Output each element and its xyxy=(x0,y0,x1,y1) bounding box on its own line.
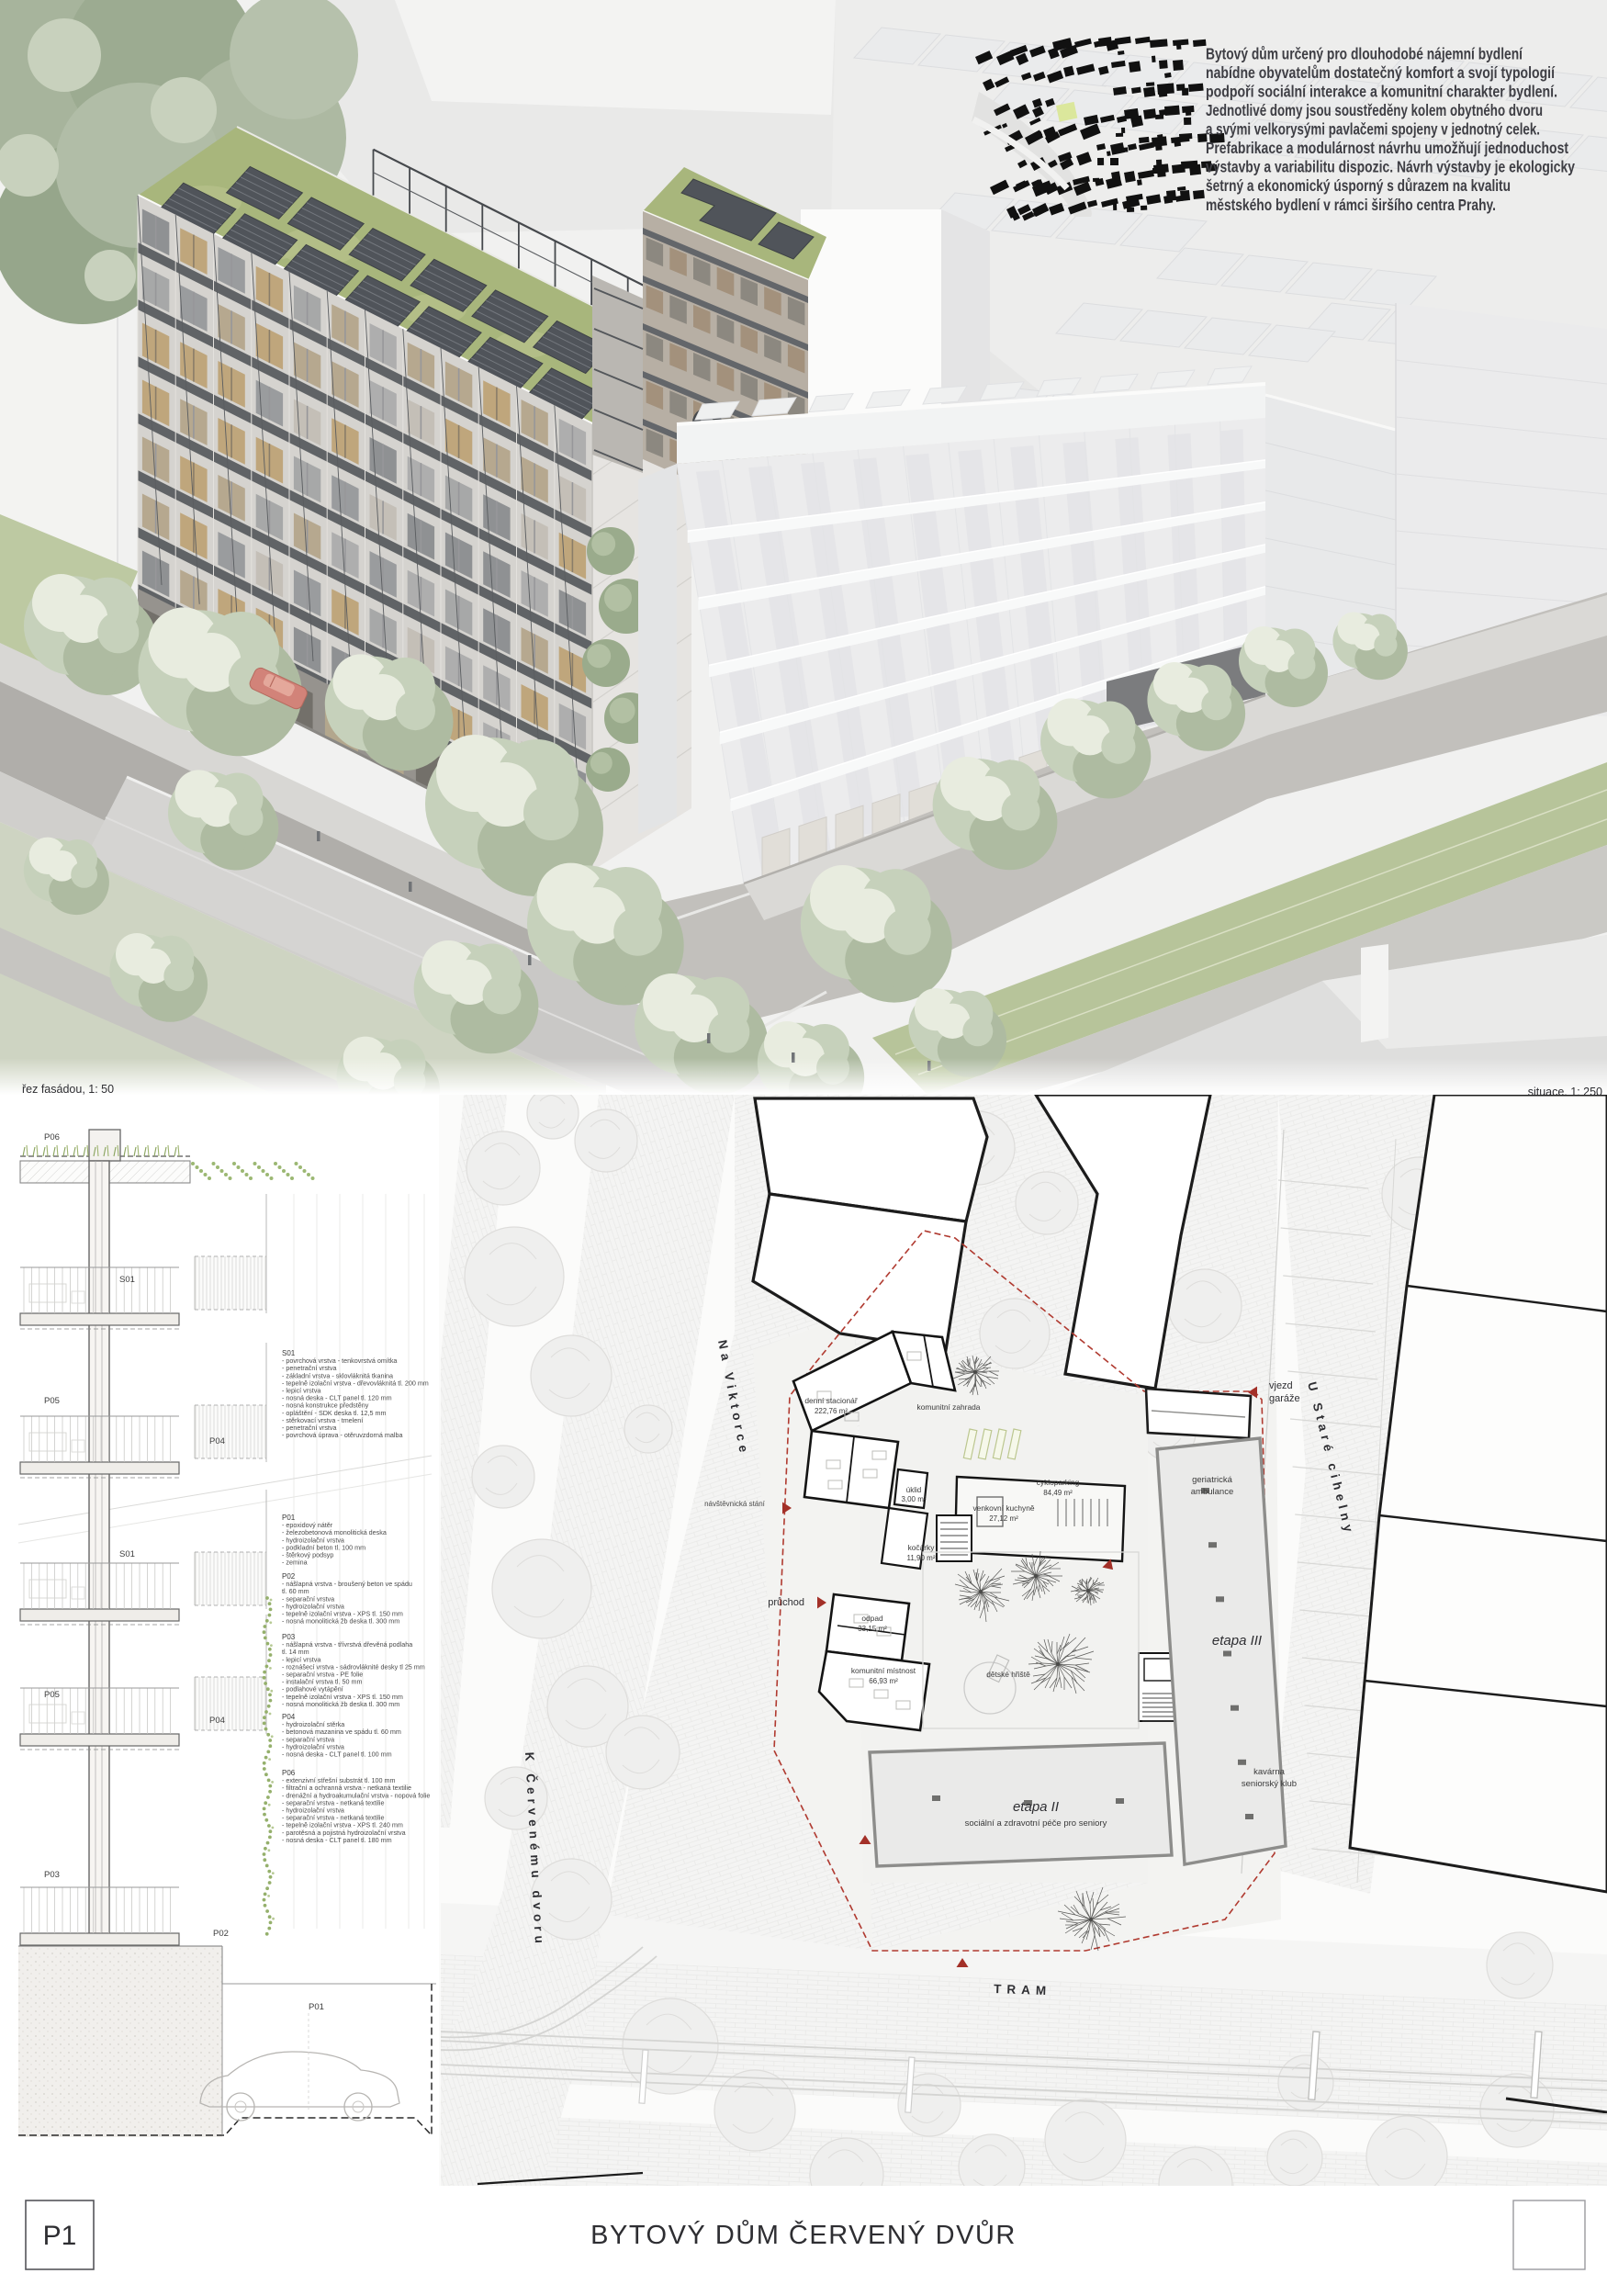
svg-text:podpoří sociální interakce a k: podpoří sociální interakce a komunitní c… xyxy=(1206,83,1557,101)
svg-text:66,93 m²: 66,93 m² xyxy=(869,1677,898,1685)
svg-text:- povrchová úprava - otěruvzdo: - povrchová úprava - otěruvzdorná malba xyxy=(282,1431,402,1439)
svg-text:33,15 m²: 33,15 m² xyxy=(858,1625,887,1633)
svg-text:P1: P1 xyxy=(43,2221,77,2251)
svg-text:venkovní kuchyně: venkovní kuchyně xyxy=(972,1503,1034,1513)
svg-text:výstavby a variabilitu dispozi: výstavby a variabilitu dispozic. Návrh v… xyxy=(1206,158,1575,176)
svg-text:řez fasádou, 1: 50: řez fasádou, 1: 50 xyxy=(22,1083,114,1096)
svg-text:odpad: odpad xyxy=(861,1614,883,1623)
svg-text:S01: S01 xyxy=(119,1549,135,1559)
svg-text:geriatrická: geriatrická xyxy=(1192,1475,1233,1485)
svg-text:P05: P05 xyxy=(44,1690,60,1700)
svg-text:P06: P06 xyxy=(44,1132,60,1142)
svg-text:šetrný a ekonomický úsporný s: šetrný a ekonomický úsporný s důrazem na… xyxy=(1206,176,1511,195)
svg-text:P04: P04 xyxy=(209,1436,225,1446)
svg-text:27,12 m²: 27,12 m² xyxy=(989,1514,1018,1523)
svg-text:S01: S01 xyxy=(119,1275,135,1285)
svg-text:Bytový dům určený pro dlouhodo: Bytový dům určený pro dlouhodobé nájemní… xyxy=(1206,44,1523,62)
svg-text:dětské hřiště: dětské hřiště xyxy=(986,1670,1030,1679)
svg-text:vjezd: vjezd xyxy=(1269,1380,1293,1391)
svg-text:a svými velkorysými pavlačemi: a svými velkorysými pavlačemi spojeny v … xyxy=(1206,120,1540,139)
svg-text:P05: P05 xyxy=(44,1396,60,1406)
svg-text:etapa III: etapa III xyxy=(1212,1633,1262,1649)
svg-text:cykloparking: cykloparking xyxy=(1037,1478,1080,1487)
svg-text:ambulance: ambulance xyxy=(1191,1487,1233,1497)
svg-text:sociální a zdravotní péče pro: sociální a zdravotní péče pro seniory xyxy=(965,1818,1107,1829)
svg-text:- nosná deska - CLT panel tl.: - nosná deska - CLT panel tl. 100 mm xyxy=(282,1750,392,1759)
svg-text:- nosná monolitická žb deska t: - nosná monolitická žb deska tl. 300 mm xyxy=(282,1700,399,1708)
svg-text:- nosná monolitická žb deska t: - nosná monolitická žb deska tl. 300 mm xyxy=(282,1617,399,1626)
svg-text:- nosná deska - CLT panel tl.: - nosná deska - CLT panel tl. 180 mm xyxy=(282,1836,392,1844)
svg-text:84,49 m²: 84,49 m² xyxy=(1043,1489,1073,1497)
svg-text:nabídne obyvatelům dostatečný: nabídne obyvatelům dostatečný komfort a … xyxy=(1206,63,1556,82)
svg-text:P01: P01 xyxy=(309,2002,324,2012)
svg-text:kočárky: kočárky xyxy=(908,1543,936,1552)
svg-text:P02: P02 xyxy=(213,1929,229,1939)
svg-text:průchod: průchod xyxy=(768,1597,804,1608)
svg-text:návštěvnická stání: návštěvnická stání xyxy=(704,1500,766,1508)
svg-text:garáže: garáže xyxy=(1269,1393,1300,1404)
svg-text:3,00 m²: 3,00 m² xyxy=(901,1495,926,1503)
svg-text:P03: P03 xyxy=(44,1870,60,1880)
svg-text:komunitní zahrada: komunitní zahrada xyxy=(917,1402,981,1412)
svg-text:222,76 m²: 222,76 m² xyxy=(815,1407,848,1415)
svg-text:Jednotlivé domy jsou soustředě: Jednotlivé domy jsou soustředěny kolem o… xyxy=(1206,101,1543,119)
svg-text:11,90 m²: 11,90 m² xyxy=(907,1554,936,1562)
svg-text:- zemina: - zemina xyxy=(282,1559,308,1567)
svg-text:komunitní místnost: komunitní místnost xyxy=(851,1666,916,1675)
svg-text:úklid: úklid xyxy=(906,1486,921,1494)
svg-text:TRAM: TRAM xyxy=(994,1982,1051,1998)
svg-text:městského bydlení v rámci širš: městského bydlení v rámci širšího centra… xyxy=(1206,196,1496,214)
svg-text:P04: P04 xyxy=(209,1716,225,1726)
svg-text:BYTOVÝ DŮM ČERVENÝ DVŮR: BYTOVÝ DŮM ČERVENÝ DVŮR xyxy=(590,2219,1017,2250)
svg-text:etapa II: etapa II xyxy=(1013,1799,1059,1815)
svg-text:seniorský klub: seniorský klub xyxy=(1242,1779,1297,1789)
svg-text:kavárna: kavárna xyxy=(1253,1767,1286,1777)
svg-text:Prefabrikace a modulárnost náv: Prefabrikace a modulárnost návrhu umožňu… xyxy=(1206,139,1568,157)
svg-text:denní stacionář: denní stacionář xyxy=(804,1396,857,1405)
